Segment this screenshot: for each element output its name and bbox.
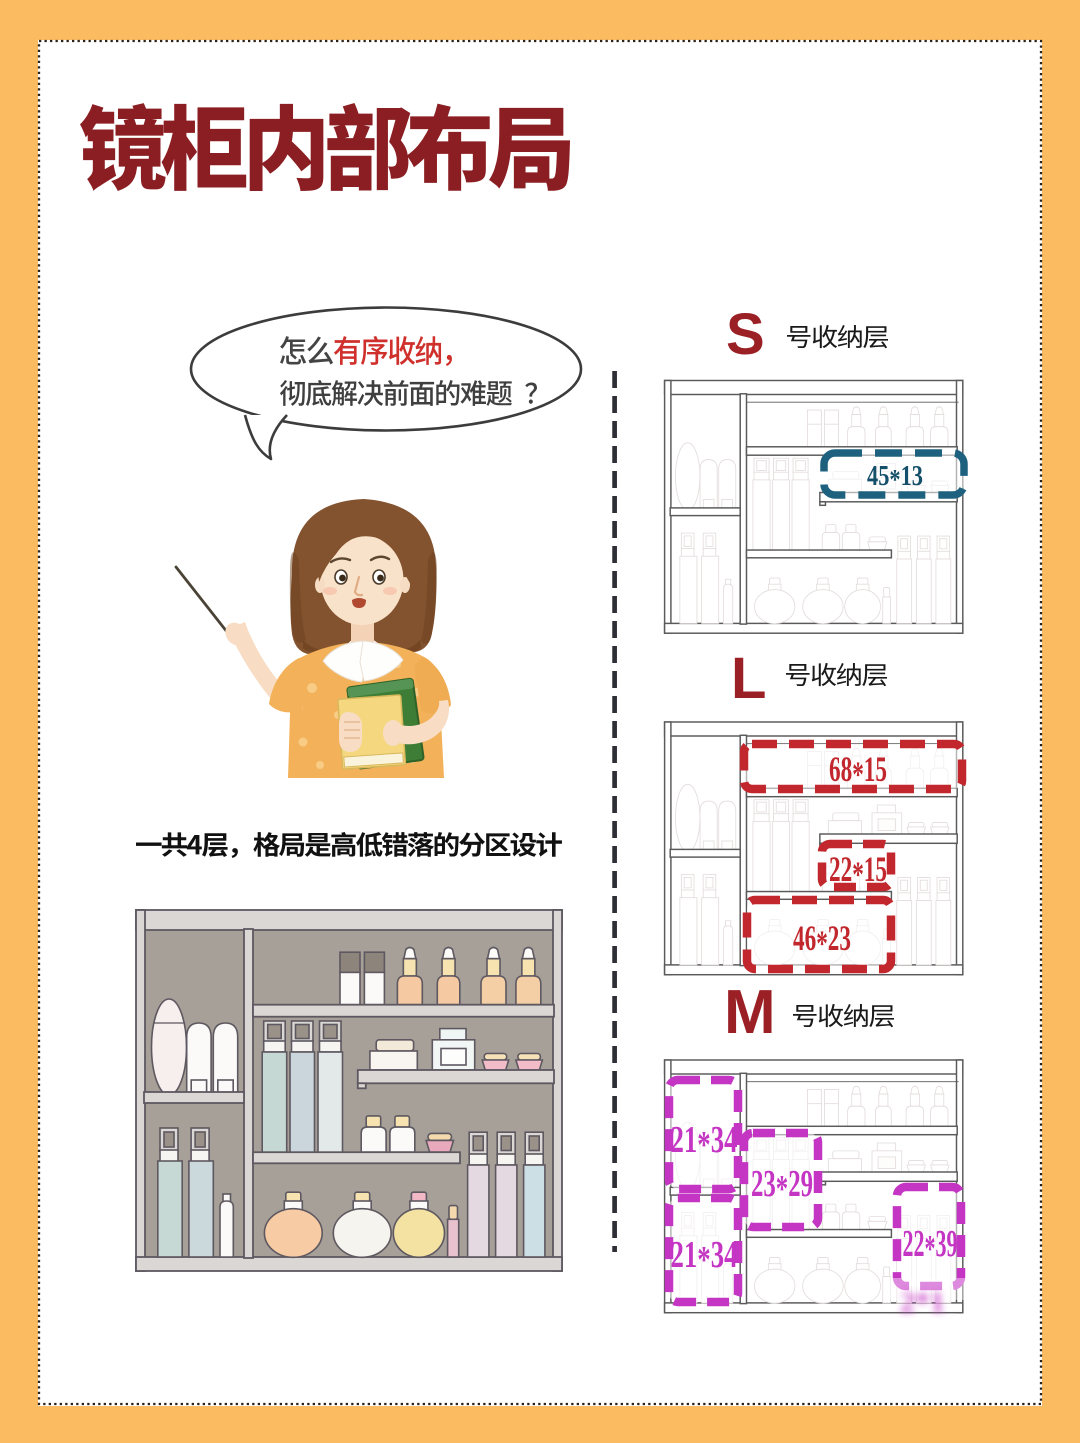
svg-text:M: M xyxy=(724,978,776,1047)
svg-text:2*1: 2*1 xyxy=(900,1286,945,1319)
svg-text:L: L xyxy=(731,646,766,711)
svg-text:S: S xyxy=(726,302,765,367)
svg-text:21*34: 21*34 xyxy=(671,1119,738,1166)
svg-text:46*23: 46*23 xyxy=(793,918,851,963)
svg-text:22*39: 22*39 xyxy=(903,1223,958,1270)
svg-text:23*29: 23*29 xyxy=(751,1163,813,1210)
svg-text:45*13: 45*13 xyxy=(867,460,923,496)
svg-text:22*15: 22*15 xyxy=(829,849,887,894)
svg-text:68*15: 68*15 xyxy=(829,749,887,794)
svg-text:21*34: 21*34 xyxy=(671,1234,738,1281)
